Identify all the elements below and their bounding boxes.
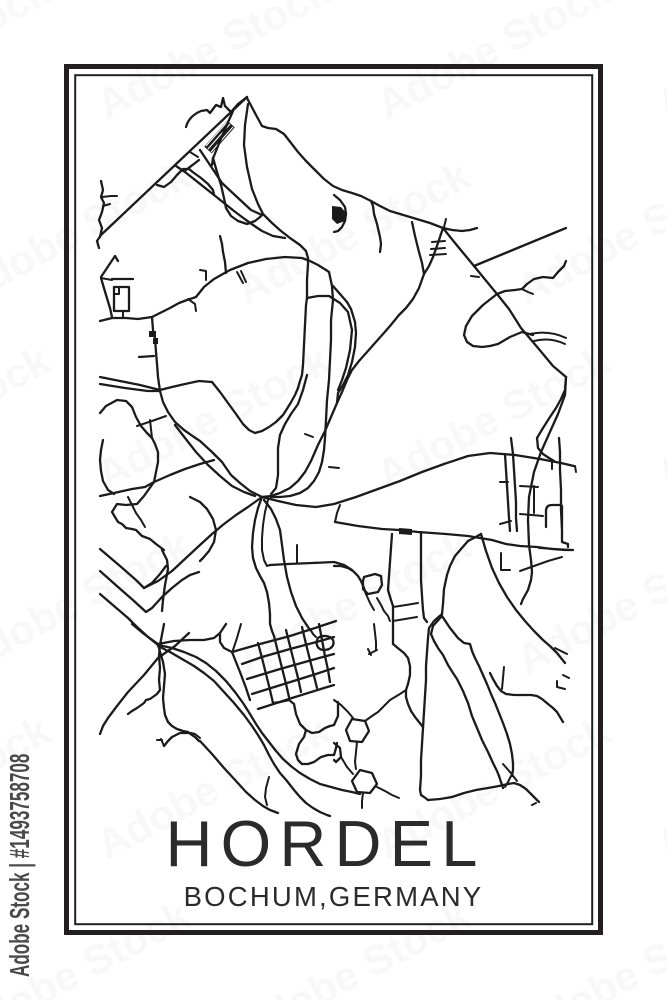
svg-text:Adobe Stock: Adobe Stock	[509, 521, 667, 683]
svg-text:Adobe Stock: Adobe Stock	[649, 0, 667, 128]
svg-text:Adobe Stock: Adobe Stock	[0, 0, 58, 128]
svg-text:Adobe Stock: Adobe Stock	[0, 521, 198, 683]
svg-text:Adobe Stock: Adobe Stock	[649, 336, 667, 498]
svg-text:Adobe Stock: Adobe Stock	[369, 336, 618, 498]
svg-text:Adobe Stock: Adobe Stock	[89, 336, 338, 498]
svg-text:Adobe Stock: Adobe Stock	[509, 151, 667, 313]
svg-text:Adobe Stock: Adobe Stock	[0, 151, 198, 313]
svg-text:Adobe Stock: Adobe Stock	[229, 521, 478, 683]
svg-text:Adobe Stock: Adobe Stock	[0, 336, 58, 498]
